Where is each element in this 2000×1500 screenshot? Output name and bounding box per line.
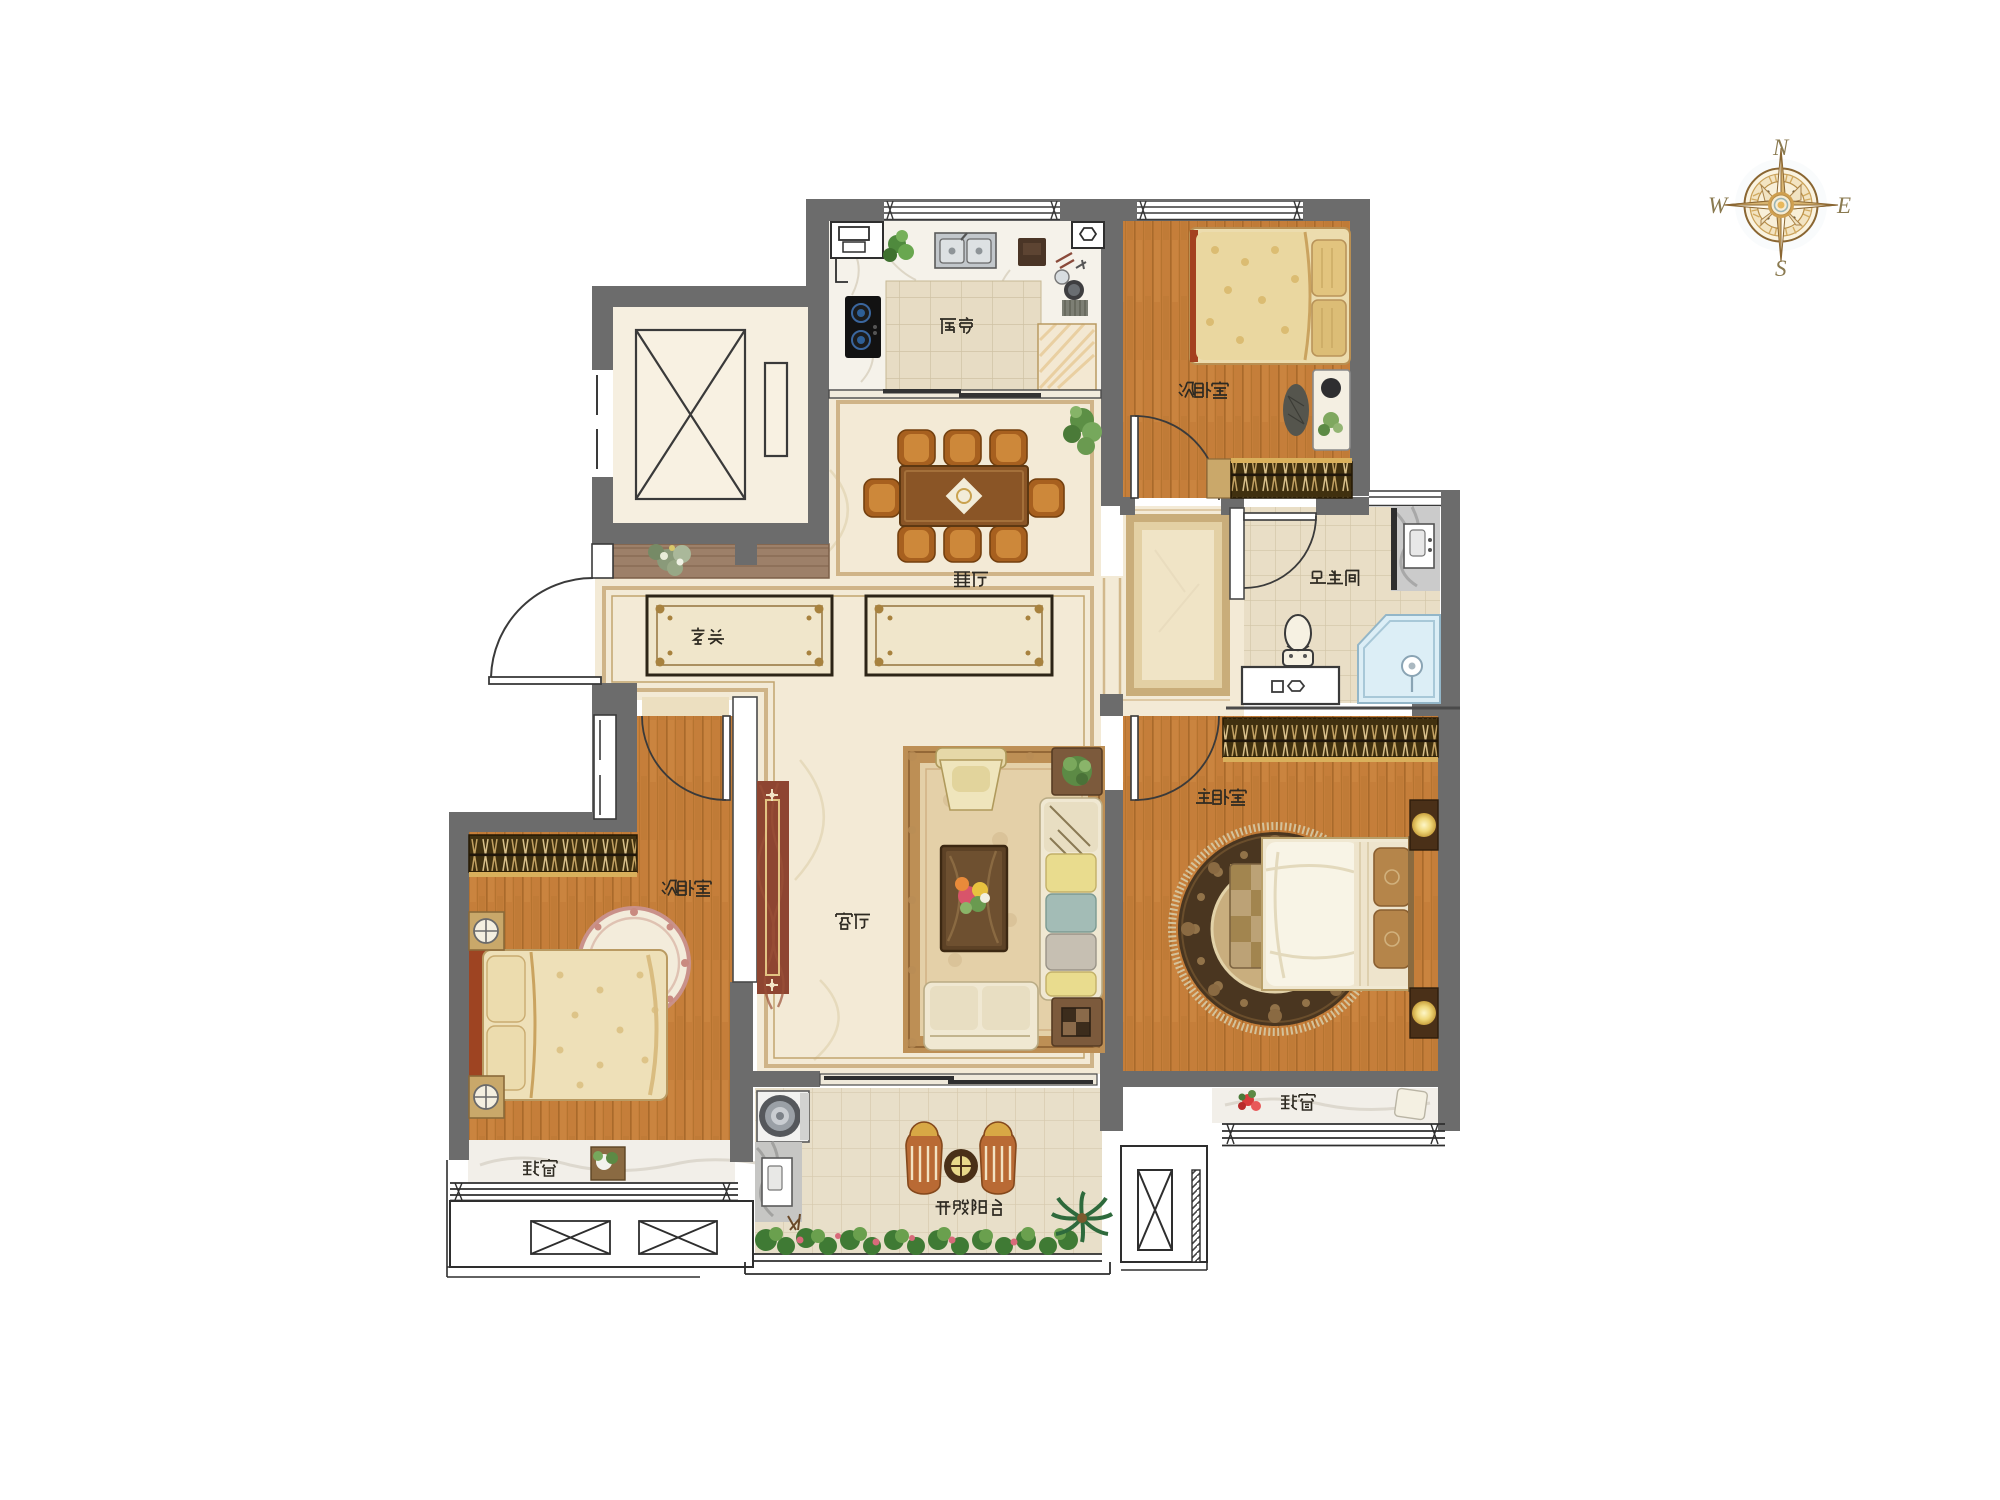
svg-text:S: S — [1775, 256, 1787, 281]
svg-text:E: E — [1836, 193, 1851, 218]
svg-text:W: W — [1708, 193, 1729, 218]
svg-text:N: N — [1772, 135, 1790, 160]
